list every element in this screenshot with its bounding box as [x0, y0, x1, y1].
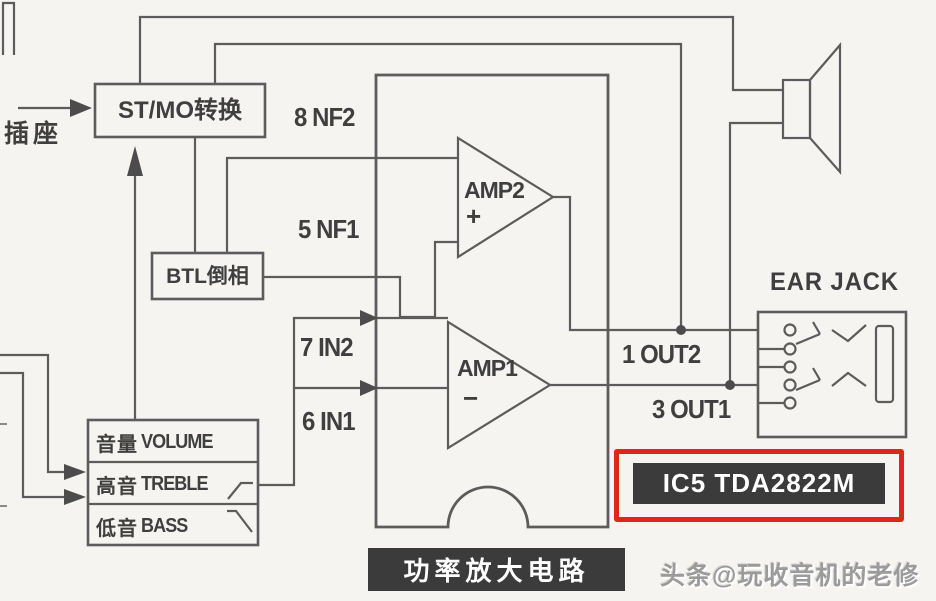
- speaker-cone: [810, 45, 840, 172]
- edge-fragment-left: [0, 424, 7, 506]
- wire-out2: [553, 197, 758, 330]
- socket-label: 插座: [4, 122, 62, 147]
- tone-row-volume: 音量 VOLUME: [96, 422, 224, 462]
- tone-volume-en: VOLUME: [141, 431, 213, 454]
- power-amp-caption-badge: 功率放大电路: [368, 548, 625, 591]
- stmo-box-label: ST/MO转换: [95, 84, 265, 137]
- amp2-plus-sign: +: [466, 203, 481, 229]
- pin-label-nf2: 8 NF2: [294, 104, 355, 130]
- amp1-label: AMP1: [457, 357, 517, 380]
- pin-label-in1: 6 IN1: [302, 408, 355, 434]
- jack-contact-upper: [796, 322, 820, 344]
- jack-spring-upper: [832, 325, 866, 341]
- jack-terminal-stubs: [758, 349, 784, 403]
- tone-arrowhead-2: [64, 489, 86, 505]
- amp2-label: AMP2: [464, 179, 524, 202]
- schematic-page: 插座 ST/MO转换 BTL倒相 8 NF2 5 NF1 7 IN2 6 IN1…: [0, 0, 936, 601]
- amp1-minus-sign: −: [463, 385, 478, 411]
- jack-spring-lower: [832, 373, 866, 386]
- up-arrowhead-stmo: [127, 146, 143, 176]
- tone-treble-en: TREBLE: [141, 473, 208, 496]
- treble-curve-symbol: [228, 483, 253, 499]
- wire-stmo-to-speaker-top: [140, 17, 783, 90]
- junction-dot-out1: [725, 380, 735, 390]
- jack-plug: [876, 326, 893, 402]
- tone-arrowhead-1: [64, 464, 86, 480]
- junction-dot-out2: [676, 325, 686, 335]
- watermark-text: 头条@玩收音机的老修: [660, 556, 919, 592]
- wire-nf1: [263, 242, 459, 317]
- btl-box-label: BTL倒相: [152, 253, 263, 299]
- pin-label-nf1: 5 NF1: [298, 216, 359, 242]
- jack-terminal-5: [785, 398, 796, 409]
- pin-label-out1: 3 OUT1: [652, 396, 730, 422]
- ic-outline-box: [376, 75, 608, 527]
- edge-fragment-top-left: [3, 3, 14, 55]
- jack-terminal-4: [785, 380, 796, 391]
- pin-label-out2: 1 OUT2: [622, 341, 700, 367]
- tone-bass-cn: 低音: [96, 512, 138, 541]
- ic-part-number-badge: IC5 TDA2822M: [633, 463, 885, 504]
- jack-terminal-2: [785, 344, 796, 355]
- tone-volume-cn: 音量: [96, 428, 138, 457]
- socket-arrowhead: [70, 99, 92, 117]
- jack-terminal-1: [785, 325, 796, 336]
- jack-contact-lower: [796, 368, 820, 390]
- pin-label-in2: 7 IN2: [300, 334, 353, 360]
- tone-row-treble: 高音 TREBLE: [96, 464, 224, 504]
- wire-stmo-to-out2: [215, 44, 681, 330]
- tone-row-bass: 低音 BASS: [96, 506, 224, 546]
- bass-curve-symbol: [227, 511, 252, 532]
- wire-speaker-to-out1: [730, 123, 783, 385]
- speaker-body: [783, 80, 810, 138]
- wire-inputs-inside-ic: [377, 318, 448, 388]
- tone-treble-cn: 高音: [96, 470, 138, 499]
- tone-bass-en: BASS: [141, 515, 187, 538]
- wire-left-input-2: [0, 373, 64, 497]
- ear-jack-label: EAR JACK: [770, 270, 899, 295]
- jack-terminal-3: [785, 362, 796, 373]
